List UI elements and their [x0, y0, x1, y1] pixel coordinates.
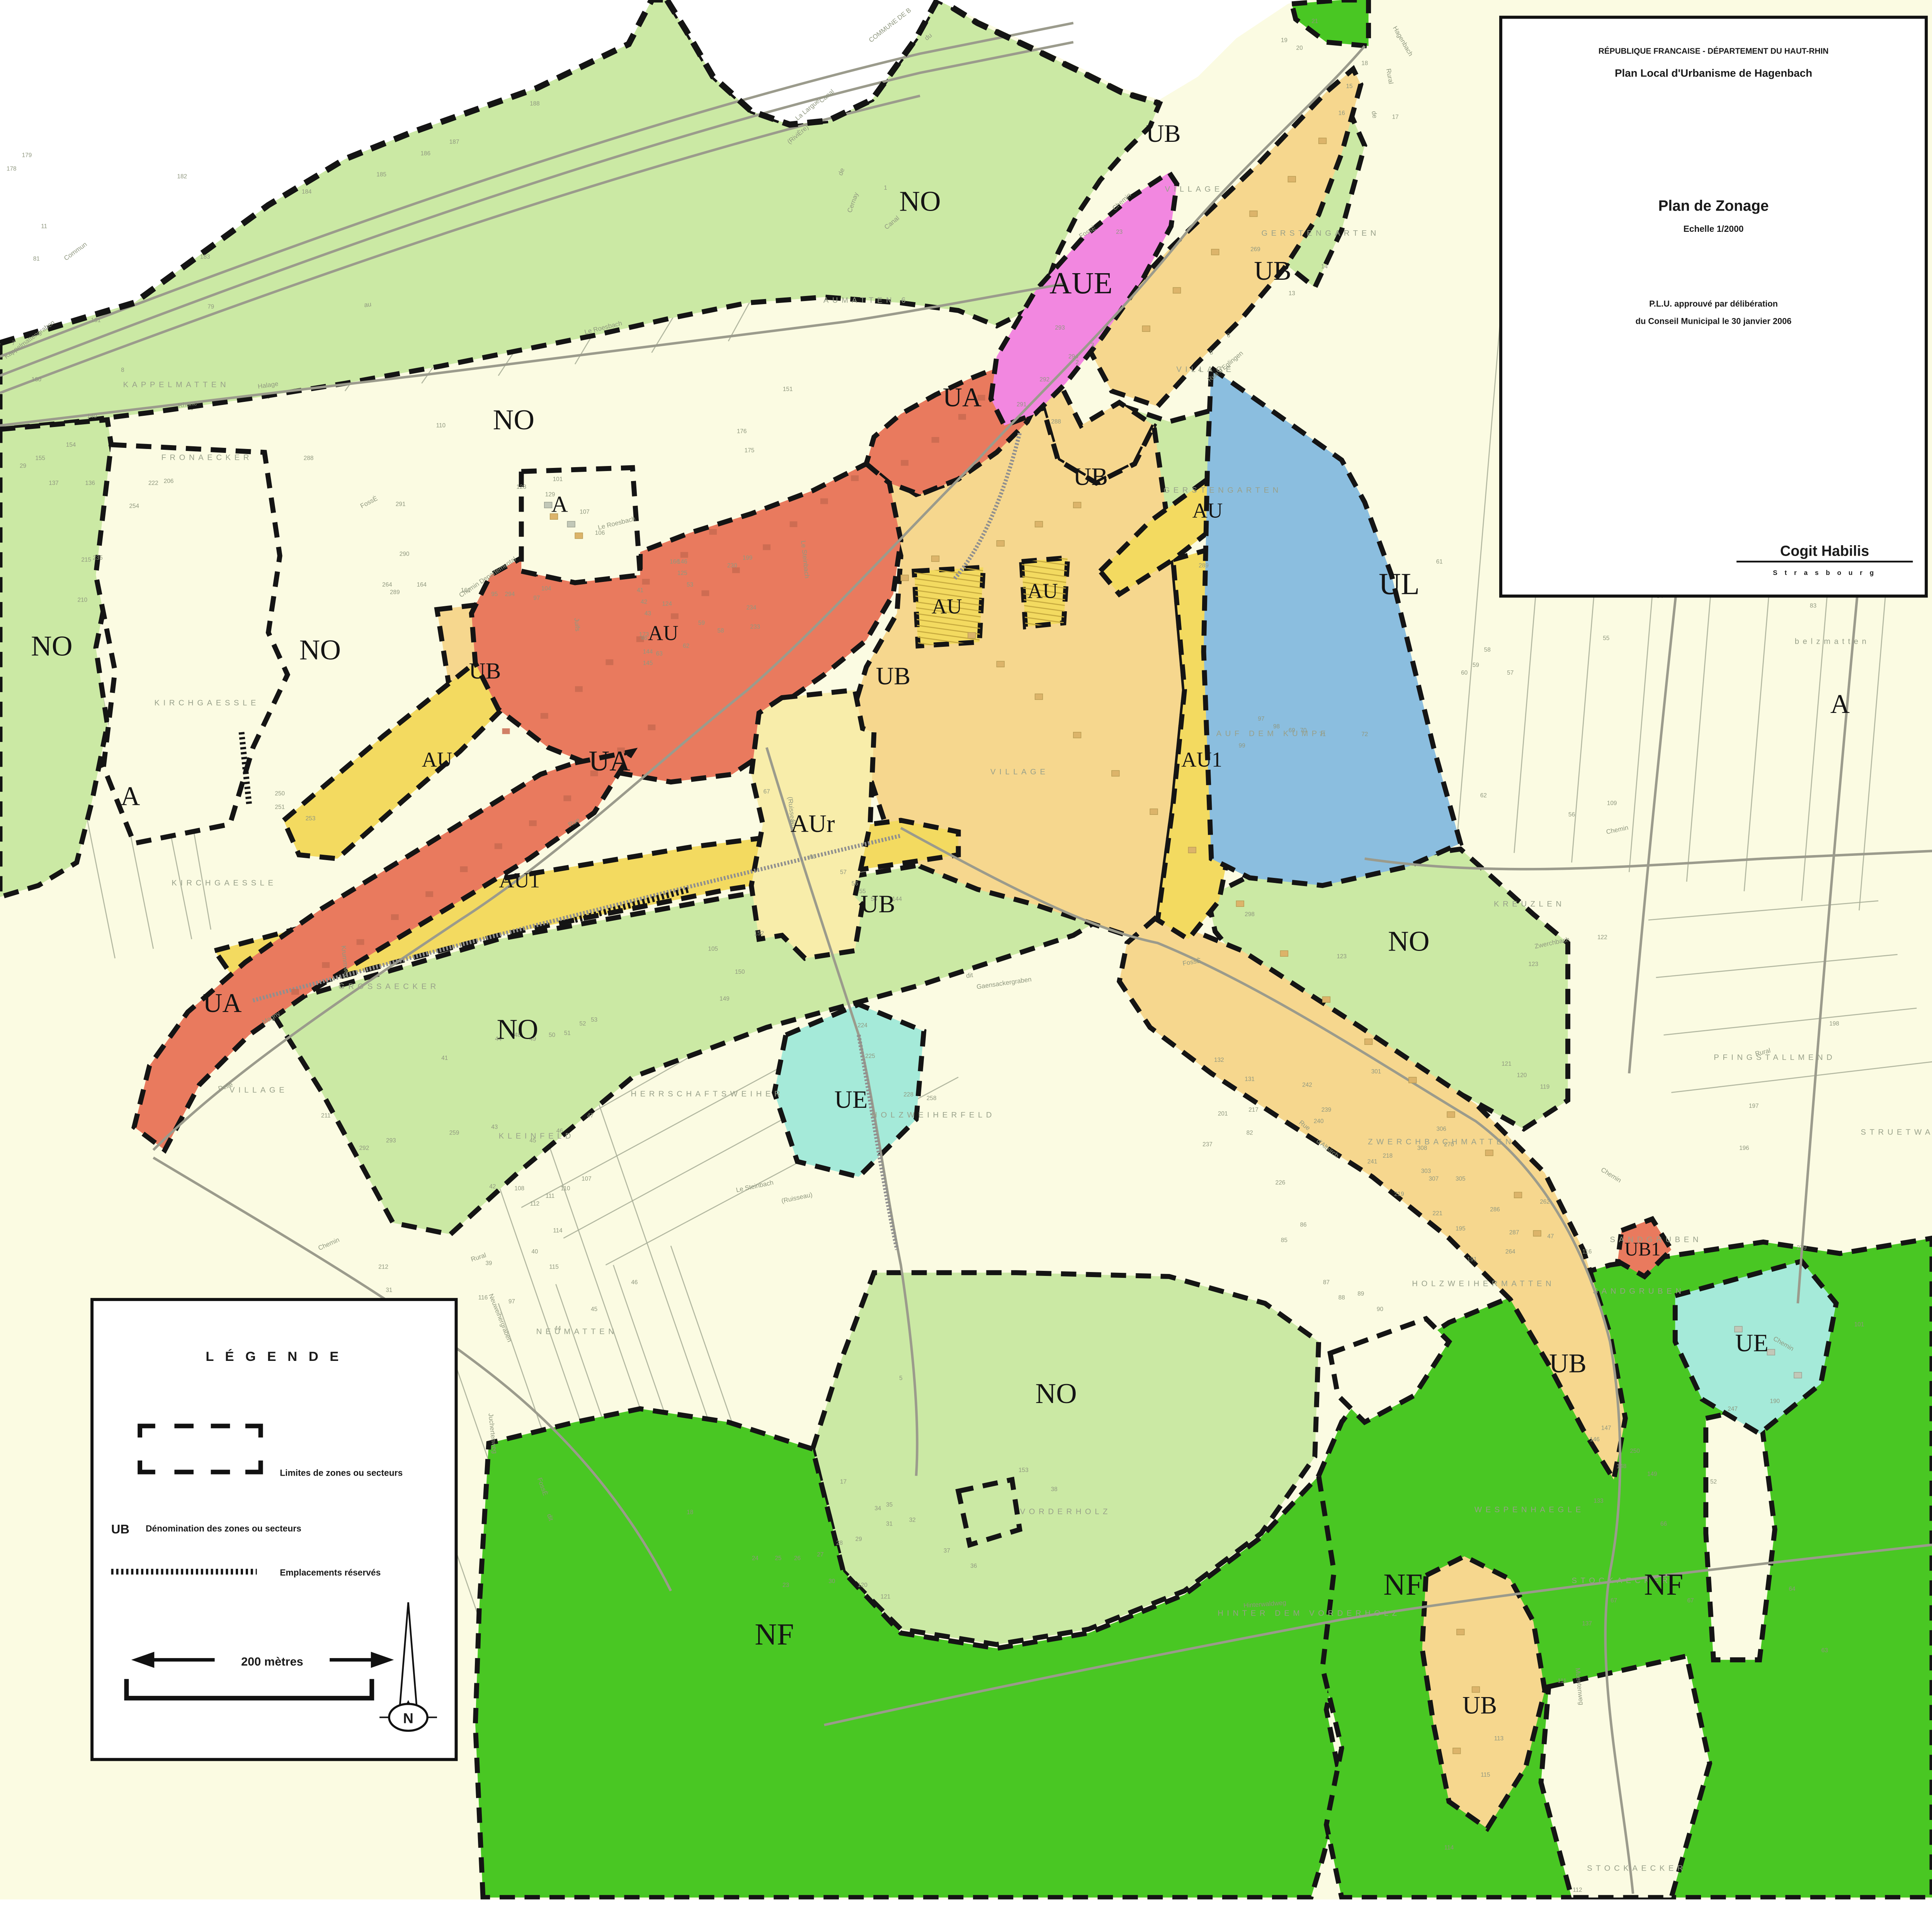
parcel-number: 289: [390, 589, 400, 596]
parcel-number: 292: [1040, 376, 1050, 383]
zone-label: UB: [1254, 256, 1291, 286]
parcel-number: 136: [85, 480, 95, 486]
title-block: RÉPUBLIQUE FRANCAISE - DÉPARTEMENT DU HA…: [1501, 17, 1926, 596]
parcel-number: 110: [561, 1185, 570, 1192]
building: [541, 713, 548, 719]
place-label: NEUMATTEN: [536, 1327, 618, 1336]
place-label: VILLAGE: [230, 1086, 288, 1094]
parcel-number: 293: [386, 1137, 396, 1144]
parcel-number: 66: [1660, 1520, 1667, 1527]
building: [1485, 1150, 1493, 1156]
parcel-number: 56: [852, 881, 858, 887]
parcel-number: 67: [1611, 1597, 1617, 1604]
zone-label: A: [1830, 689, 1850, 719]
parcel-number: 293: [1055, 325, 1065, 331]
parcel-number: 104: [541, 585, 551, 592]
parcel-number: 250: [1630, 1448, 1640, 1454]
parcel-number: 58: [1484, 647, 1491, 653]
zone-label: A: [121, 781, 140, 811]
parcel-number: 264: [382, 582, 392, 588]
parcel-number: 29: [20, 463, 26, 469]
parcel-number: 306: [1436, 1126, 1446, 1133]
zone-label: UE: [1735, 1329, 1769, 1357]
parcel-number: 86: [1300, 1222, 1306, 1228]
building: [544, 502, 552, 508]
parcel-number: 101: [553, 476, 563, 483]
parcel-number: 242: [1302, 1082, 1312, 1088]
building: [1409, 1077, 1417, 1083]
parcel-number: 137: [49, 480, 59, 486]
building: [575, 533, 583, 539]
building: [1112, 770, 1119, 776]
zone-label: AU: [422, 748, 452, 771]
zone-label: NO: [299, 634, 341, 666]
place-label: GROSSAECKER: [338, 983, 440, 991]
parcel-number: 61: [1436, 558, 1443, 565]
parcel-number: 226: [1276, 1179, 1286, 1186]
building: [701, 590, 709, 596]
parcel-number: 52: [579, 1020, 586, 1027]
parcel-number: 307: [1429, 1176, 1439, 1182]
water-road-label: dit: [966, 971, 974, 980]
parcel-number: 251: [275, 804, 285, 810]
building: [495, 844, 502, 849]
parcel-number: 105: [708, 946, 718, 952]
parcel-number: 42: [641, 599, 647, 605]
place-label: FRONAECKER: [161, 453, 252, 462]
parcel-number: 116: [478, 1294, 488, 1301]
parcel-number: 108: [514, 1185, 524, 1192]
parcel-number: 183: [200, 254, 210, 260]
zone-label: AU: [1192, 498, 1223, 522]
parcel-number: 5: [1210, 350, 1213, 356]
parcel-number: 121: [881, 1594, 891, 1600]
parcel-number: 262: [1540, 1199, 1550, 1205]
north-letter: N: [403, 1710, 413, 1726]
parcel-number: 107: [582, 1176, 592, 1182]
parcel-number: 20: [1296, 45, 1303, 51]
building: [997, 661, 1004, 667]
parcel-number: 124: [662, 600, 672, 607]
building: [648, 724, 656, 730]
parcel-number: 119: [1540, 1083, 1550, 1090]
parcel-number: 239: [1321, 1107, 1332, 1113]
parcel-number: 224: [857, 1022, 867, 1029]
parcel-number: 82: [1247, 1130, 1253, 1136]
parcel-number: 264: [1505, 1248, 1515, 1255]
parcel-number: 112: [1573, 1887, 1582, 1893]
parcel-number: 8: [121, 367, 124, 373]
parcel-number: 215: [81, 556, 91, 563]
building: [322, 962, 330, 968]
parcel-number: 88: [1338, 1294, 1345, 1301]
parcel-number: 57: [1507, 670, 1514, 676]
parcel-number: 230: [727, 562, 737, 569]
parcel-number: 53: [591, 1017, 597, 1023]
zone-label: NO: [497, 1014, 538, 1045]
parcel-number: 132: [1214, 1057, 1224, 1063]
building: [502, 728, 510, 734]
zone-label: NO: [493, 404, 534, 436]
water-road-label: Juifs: [573, 617, 582, 631]
parcel-number: 41: [441, 1055, 448, 1061]
parcel-number: 41: [637, 587, 643, 594]
parcel-number: 29: [855, 1536, 862, 1543]
parcel-number: 90: [1377, 1306, 1383, 1313]
parcel-number: 228: [903, 1091, 913, 1098]
parcel-number: 63: [1821, 1647, 1828, 1654]
parcel-number: 121: [1502, 1061, 1512, 1067]
building: [425, 891, 433, 897]
building: [1794, 1372, 1802, 1378]
parcel-number: 211: [321, 1112, 330, 1119]
building: [1173, 287, 1181, 293]
parcel-number: 253: [306, 815, 316, 822]
building: [1250, 211, 1257, 217]
parcel-number: 123: [1337, 953, 1347, 960]
zone-label: NF: [1644, 1568, 1683, 1602]
zone-label: A: [551, 491, 568, 517]
place-label: KREUZLEN: [1494, 900, 1565, 908]
parcel-number: 217: [1248, 1107, 1259, 1113]
title-plan-de-zonage: Plan de Zonage: [1658, 198, 1769, 214]
legend-label-emplacements: Emplacements réservés: [280, 1567, 381, 1577]
parcel-number: 259: [449, 1130, 459, 1136]
parcel-number: 87: [1323, 1279, 1330, 1286]
parcel-number: 109: [1607, 800, 1617, 806]
zone-label: AU: [932, 594, 962, 618]
zone-label: UB: [861, 890, 895, 918]
parcel-number: 286: [1490, 1206, 1500, 1213]
parcel-number: 110: [436, 422, 446, 429]
parcel-number: 241: [1367, 1158, 1378, 1165]
parcel-number: 43: [645, 610, 651, 617]
place-label: KAPPELMATTEN: [123, 381, 230, 389]
water-road-label: de: [1370, 111, 1379, 119]
parcel-number: 37: [944, 1548, 950, 1554]
place-label: STRUETWASEN: [1861, 1128, 1932, 1137]
parcel-number: 206: [164, 478, 174, 485]
parcel-number: 180: [31, 376, 41, 383]
parcel-number: 122: [1597, 934, 1607, 941]
place-label: HOLZWEIHERFELD: [871, 1111, 995, 1119]
place-label: HINTER DEM VORDERHOLZ: [1218, 1609, 1400, 1618]
zone-label: AU1: [499, 869, 540, 892]
bottom-margin: [0, 1900, 1932, 1932]
parcel-number: 153: [1019, 1467, 1029, 1474]
parcel-number: 25: [775, 1555, 781, 1562]
parcel-number: 19: [1281, 37, 1287, 44]
parcel-number: 176: [737, 428, 747, 435]
parcel-number: 128: [516, 484, 526, 490]
parcel-number: 164: [417, 582, 427, 588]
zone-label: NO: [1388, 925, 1429, 957]
building: [1142, 326, 1150, 332]
parcel-number: 115: [549, 1264, 559, 1270]
place-label: PFINGSTALLMEND: [1714, 1053, 1836, 1062]
parcel-number: 60: [1461, 670, 1468, 676]
parcel-number: 291: [396, 501, 406, 508]
parcel-number: 222: [148, 480, 158, 486]
parcel-number: 46: [641, 635, 647, 642]
parcel-number: 114: [1444, 1845, 1454, 1851]
parcel-number: 17: [1392, 114, 1399, 121]
parcel-number: 154: [66, 442, 76, 448]
building: [901, 460, 908, 466]
building: [958, 414, 966, 420]
building: [671, 613, 679, 619]
legend-label-limites: Limites de zones ou secteurs: [280, 1468, 403, 1478]
building: [820, 498, 828, 504]
parcel-number: 182: [177, 173, 187, 180]
parcel-number: 26: [794, 1555, 801, 1562]
parcel-number: 288: [304, 455, 314, 461]
parcel-number: 116: [1582, 1248, 1592, 1255]
title-approval-1: P.L.U. approuvé par délibération: [1649, 299, 1778, 309]
building: [1188, 847, 1196, 853]
parcel-number: 36: [970, 1563, 977, 1570]
legend-scale-text: 200 mètres: [241, 1655, 303, 1668]
building: [1236, 901, 1244, 906]
parcel-number: 5: [899, 1375, 903, 1381]
parcel-number: 191: [1467, 1256, 1477, 1263]
parcel-number: 52: [1710, 1478, 1717, 1485]
zone-label: AU1: [1181, 748, 1222, 771]
parcel-number: 115: [1481, 1772, 1490, 1778]
parcel-number: 39: [485, 1260, 492, 1267]
parcel-number: 67: [1687, 1597, 1694, 1604]
parcel-number: 28: [836, 1540, 843, 1546]
building: [567, 521, 575, 527]
parcel-number: 219: [1394, 1191, 1404, 1197]
building: [709, 529, 717, 535]
parcel-number: 120: [1517, 1072, 1527, 1079]
building: [391, 914, 399, 920]
place-label: WESPENHAEGLE: [1475, 1506, 1585, 1514]
building: [357, 939, 364, 945]
building: [1365, 1039, 1372, 1044]
parcel-number: 235: [93, 554, 103, 561]
building: [1211, 249, 1219, 255]
parcel-number: 233: [750, 624, 760, 630]
parcel-number: 190: [1770, 1398, 1780, 1405]
parcel-number: 95: [491, 591, 498, 598]
parcel-number: 17: [840, 1478, 847, 1485]
zone-label: UL: [1379, 567, 1420, 601]
place-label: KLEINFELD: [499, 1132, 575, 1140]
parcel-number: 185: [376, 171, 386, 178]
title-approval-2: du Conseil Municipal le 30 janvier 2006: [1636, 316, 1792, 326]
water-road-label: au: [364, 300, 372, 308]
building: [851, 475, 859, 481]
zone-label: UE: [834, 1086, 867, 1113]
parcel-number: 59: [698, 620, 705, 626]
parcel-number: 23: [1116, 229, 1122, 235]
building: [1035, 694, 1043, 700]
building: [680, 552, 688, 558]
parcel-number: 125: [677, 570, 687, 577]
parcel-number: 64: [1789, 1586, 1796, 1592]
parcel-number: 1: [884, 185, 887, 191]
parcel-number: 120: [857, 1582, 867, 1588]
place-label: AUMATTEN 6: [823, 296, 910, 305]
place-label: VILLAGE: [990, 768, 1049, 776]
zoning-map: 1881871861851841831821811801791781102882…: [0, 0, 1932, 1932]
parcel-number: 13: [1289, 290, 1295, 297]
zone-label: UB: [1073, 463, 1108, 490]
zone-label: NF: [1383, 1568, 1422, 1602]
building: [1447, 1112, 1455, 1117]
building: [997, 541, 1004, 546]
building: [1453, 1748, 1461, 1754]
zone-label: NO: [899, 186, 940, 218]
title-plu: Plan Local d'Urbanisme de Hagenbach: [1615, 67, 1812, 79]
parcel-number: 79: [207, 304, 214, 310]
parcel-number: 181: [91, 317, 101, 323]
parcel-number: 81: [33, 256, 40, 262]
parcel-number: 287: [1509, 1229, 1519, 1236]
parcel-number: 111: [1558, 1678, 1566, 1684]
building: [968, 633, 976, 638]
zone-label: UA: [589, 745, 631, 777]
parcel-number: 34: [874, 1505, 881, 1512]
parcel-number: 149: [1647, 1471, 1657, 1477]
building: [529, 820, 537, 826]
parcel-number: 85: [1281, 1237, 1287, 1243]
parcel-number: 89: [1357, 1291, 1364, 1297]
place-label: SANDGRUBEN: [1593, 1287, 1685, 1296]
building: [1533, 1231, 1541, 1236]
parcel-number: 63: [656, 650, 663, 657]
parcel-number: 98: [1273, 723, 1280, 730]
place-label: STOCKAECKER: [1587, 1864, 1687, 1872]
legend-title: L É G E N D E: [206, 1349, 342, 1364]
parcel-number: 148: [1617, 1463, 1627, 1470]
parcel-number: 178: [7, 165, 17, 172]
parcel-number: 151: [783, 386, 793, 393]
title-republique: RÉPUBLIQUE FRANCAISE - DÉPARTEMENT DU HA…: [1599, 47, 1829, 56]
parcel-number: 237: [1202, 1141, 1213, 1148]
parcel-number: 149: [719, 995, 730, 1002]
parcel-number: 137: [1582, 1620, 1592, 1627]
zone-label: UB1: [1624, 1238, 1661, 1260]
parcel-number: 166: [670, 558, 680, 565]
place-label: HOLZWEIHERMATTEN: [1412, 1279, 1555, 1288]
parcel-number: 46: [631, 1279, 638, 1286]
parcel-number: 150: [735, 969, 745, 975]
parcel-number: 47: [1547, 1233, 1554, 1240]
parcel-number: 199: [743, 554, 753, 561]
zone-label: AUE: [1049, 266, 1112, 300]
parcel-number: 258: [927, 1095, 937, 1102]
building: [1323, 997, 1330, 1002]
parcel-number: 6: [1227, 332, 1230, 339]
parcel-number: 247: [1728, 1406, 1738, 1412]
legend: L É G E N D E Limites de zones ou secteu…: [92, 1299, 456, 1759]
parcel-number: 16: [1338, 110, 1345, 117]
building: [932, 437, 939, 443]
building: [563, 796, 571, 801]
parcel-number: 269: [1250, 246, 1260, 253]
parcel-number: 305: [1456, 1176, 1466, 1182]
parcel-number: 155: [35, 455, 45, 461]
logo-strasbourg: S t r a s b o u r g: [1773, 569, 1876, 577]
parcel-number: 212: [378, 1264, 388, 1270]
parcel-number: 279: [1797, 1245, 1807, 1251]
parcel-number: 188: [530, 100, 540, 107]
zone-label: AUr: [791, 810, 835, 837]
parcel-number: 225: [865, 1053, 875, 1060]
parcel-number: 42: [489, 1183, 496, 1190]
parcel-number: 53: [687, 582, 693, 588]
parcel-number: 97: [509, 1298, 515, 1305]
parcel-number: 290: [400, 551, 410, 557]
building: [1073, 502, 1081, 508]
place-label: AUF DEM KUMPF: [1216, 730, 1329, 738]
parcel-number: 292: [359, 1145, 369, 1151]
parcel-number: 99: [1239, 743, 1245, 749]
parcel-number: 3: [1091, 342, 1094, 349]
parcel-number: 24: [752, 1555, 759, 1562]
parcel-number: 114: [553, 1227, 563, 1234]
building: [1150, 809, 1158, 815]
parcel-number: 250: [275, 791, 285, 797]
zone-label: UB: [1549, 1349, 1586, 1379]
building: [291, 989, 299, 995]
parcel-number: 50: [549, 1032, 555, 1039]
parcel-number: 62: [1480, 792, 1487, 799]
building: [1073, 732, 1081, 738]
building: [1280, 951, 1288, 956]
parcel-number: 303: [1421, 1168, 1431, 1175]
parcel-number: 107: [580, 509, 590, 515]
parcel-number: 55: [1603, 635, 1609, 642]
parcel-number: 83: [1810, 602, 1816, 609]
parcel-number: 131: [1245, 1076, 1255, 1083]
parcel-number: 184: [302, 189, 312, 195]
parcel-number: 291: [1017, 401, 1027, 408]
zone-label: UB: [876, 662, 911, 690]
parcel-number: 195: [1456, 1226, 1466, 1232]
place-label: GERSTENGARTEN: [1163, 486, 1282, 495]
parcel-number: 57: [840, 869, 847, 876]
parcel-number: 18: [1361, 60, 1368, 67]
parcel-number: 186: [420, 150, 430, 157]
parcel-number: 23: [782, 1582, 789, 1588]
legend-symbol-ub: UB: [111, 1522, 129, 1536]
parcel-number: 72: [1361, 731, 1368, 738]
parcel-number: 27: [817, 1551, 823, 1558]
parcel-number: 197: [1749, 1103, 1759, 1109]
zone-label: NO: [1035, 1378, 1077, 1410]
parcel-number: 40: [531, 1248, 538, 1255]
parcel-number: 254: [129, 503, 139, 509]
zone-label: AU: [648, 621, 679, 645]
building: [1288, 176, 1296, 182]
parcel-number: 56: [1568, 811, 1575, 818]
place-label: GERSTENGARTEN: [1261, 229, 1379, 238]
parcel-number: 21: [1311, 18, 1318, 25]
parcel-number: 140: [87, 413, 97, 419]
parcel-number: 32: [909, 1517, 916, 1523]
building: [575, 686, 583, 692]
zone-label: UB: [469, 658, 501, 684]
building: [932, 556, 939, 561]
parcel-number: 201: [1218, 1111, 1228, 1117]
parcel-number: 111: [546, 1193, 554, 1199]
parcel-number: 11: [41, 223, 47, 230]
logo-cogit-habilis: Cogit Habilis: [1780, 543, 1869, 559]
